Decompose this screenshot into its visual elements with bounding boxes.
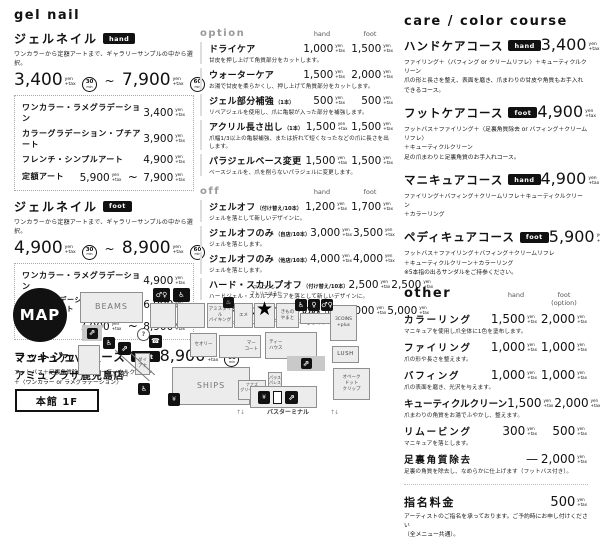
escalator-zone: ⇗ [287, 356, 325, 371]
table-row: ワンカラー・ラメグラデーション 3,400yen+tax [22, 100, 186, 126]
course-item: マニキュアコース hand 4,900yen+tax 50min ファイリング＋… [404, 169, 588, 221]
course-price: 5,900yen+tax 50min [549, 227, 600, 249]
menu-desc: リペアジェルを使用し、爪に亀裂が入った部分を補強します。 [209, 108, 394, 116]
other-item: リムービング 300yen+tax 500yen+tax マニキュアを落とします… [404, 424, 588, 447]
course-desc: フットバス＋ファイリング＋バフィング＋クリームリフレ ＋キューティクルクリーン＋… [404, 250, 588, 278]
foot-column-label: foot [346, 189, 394, 197]
menu-desc: 爪幅1/3以上の亀裂補強、または折れて短くなったなどの爪に長さを出します。 [209, 134, 394, 150]
escalator-icon: ⇗ [118, 342, 131, 355]
price-to: 8,900 [122, 238, 171, 258]
nomination-fee-section: 指名料金 500yen+tax アーティストのご指名を承っております。ご予約時に… [404, 484, 588, 541]
foot-price: 3,500yen+tax [353, 227, 396, 239]
menu-desc: マニキュアを使用し爪全体に1色を塗布します。 [404, 327, 588, 335]
shop-mercato: マー コート [219, 335, 261, 358]
foot-price: 2,000yen+tax [538, 312, 588, 326]
gel-hand-title: ジェルネイル [14, 30, 98, 47]
hand-price: 1,500yen+tax [303, 121, 348, 133]
menu-note: （1本） [284, 125, 303, 132]
menu-desc: 足裏の角質を除去し、なめらかに仕上げます（フットバス付き）。 [404, 467, 588, 475]
menu-name: ジェルオフ [209, 200, 256, 213]
option-header: option [200, 28, 298, 39]
menu-desc: ベースジェルを、爪を削らないパラジェルに変更します。 [209, 168, 394, 176]
nomination-fee-desc: アーティストのご指名を承っております。ご予約時にお申し付けください （全メニュー… [404, 513, 588, 541]
course-name: マニキュアコース [404, 172, 503, 188]
hand-column-label: hand [298, 189, 346, 197]
shop-theory: セオリー [190, 333, 217, 357]
hand-price: 1,000yen+tax [298, 43, 346, 55]
shop-lush: LUSH [332, 346, 359, 363]
course-item: ペディキュアコース foot 5,900yen+tax 50min フットバス＋… [404, 227, 588, 279]
gel-foot-title-row: ジェルネイル foot [14, 198, 194, 215]
shop-eme: エメ [234, 303, 253, 328]
gel-hand-section: ジェルネイル hand ワンカラーから定額アートまで、ギャラリーサンプルの中から… [14, 30, 194, 191]
option-item: ウォーターケア 1,500yen+tax 2,000yen+tax お湯で甘皮を… [200, 68, 394, 90]
hand-price: 500yen+tax [298, 95, 346, 107]
course-name: ハンドケアコース [404, 38, 503, 54]
floor-map: BEAMS アミスタイル バイキング エメ きもの やまと 3COINS +pl… [78, 286, 398, 422]
yen-tax-unit: yen+tax [65, 245, 76, 255]
minutes-badge: 30min [82, 245, 97, 260]
phone-icon: ☎ [149, 335, 162, 348]
price-to: 7,900 [122, 70, 171, 90]
foot-price: 2,000yen+tax [554, 396, 600, 410]
menu-name: リムービング [404, 424, 472, 438]
course-item: ハンドケアコース hand 3,400yen+tax 30min ファイリング＋… [404, 35, 588, 96]
hand-price: 4,000yen+tax [310, 253, 353, 265]
price-from: 3,400 [14, 70, 63, 90]
off-item: ジェルオフのみ（自店/10本） 3,000yen+tax 3,500yen+ta… [200, 226, 394, 248]
menu-desc: ジェルを落として新しいデザインに。 [209, 214, 394, 222]
hand-price: 3,000yen+tax [310, 227, 353, 239]
other-item: バフィング 1,000yen+tax 1,000yen+tax 爪の表面を磨き、… [404, 368, 588, 391]
foot-price: 1,000yen+tax [538, 368, 588, 382]
foot-price: 2,000yen+tax [346, 69, 394, 81]
menu-price: 3,900yen+tax [143, 133, 186, 145]
menu-name: カラーリング [404, 312, 472, 326]
accessible-icon: ♿ [103, 337, 115, 349]
off-header-row: off hand foot [200, 186, 394, 197]
gel-hand-title-row: ジェルネイル hand [14, 30, 194, 47]
accessible-icon: ♿ [173, 288, 190, 302]
menu-note: （付け替え/10本） [257, 205, 302, 212]
yen-tax-unit: yen+tax [173, 245, 184, 255]
shop-3coins: 3COINS +plus [330, 305, 357, 341]
option-item: ドライケア 1,000yen+tax 1,500yen+tax 甘皮を押し上げて… [200, 42, 394, 64]
menu-price-range: 5,900yen+tax ~ 7,900yen+tax [80, 170, 186, 184]
menu-desc: ジェルを落とします。 [209, 240, 394, 248]
menu-name: ジェル部分補強 [209, 94, 274, 107]
atm-icon: ¥ [258, 391, 270, 404]
menu-name: バフィング [404, 368, 460, 382]
hand-price: 1,500yen+tax [507, 396, 554, 410]
course-item: フットケアコース foot 4,900yen+tax 40min フットバス＋フ… [404, 102, 588, 163]
hand-price: — [488, 452, 538, 466]
foot-price: 1,000yen+tax [538, 340, 588, 354]
foot-price: 2,000yen+tax [538, 452, 588, 466]
nomination-fee-name: 指名料金 [404, 494, 455, 510]
course-price: 4,900yen+tax 50min [541, 169, 600, 191]
hand-price: 1,500yen+tax [302, 155, 348, 167]
off-header: off [200, 186, 298, 197]
menu-name: ジェルオフのみ [209, 252, 274, 265]
gel-hand-price-table: ワンカラー・ラメグラデーション 3,400yen+tax カラーグラデーション・… [14, 95, 194, 191]
escalator-zone: ⇗ [82, 325, 102, 341]
gel-foot-price-range: 4,900yen+tax 30min ~ 8,900yen+tax 60min [14, 238, 194, 260]
tilde: ~ [104, 242, 114, 256]
menu-name: ドライケア [209, 42, 256, 55]
menu-note: （1本） [275, 99, 294, 106]
bus-terminal-label: バスターミナル [248, 409, 328, 417]
hand-price: 1,500yen+tax [298, 69, 346, 81]
foot-price: 1,500yen+tax [346, 43, 394, 55]
nomination-fee-price: 500yen+tax [538, 495, 588, 510]
menu-desc: ジェルを落とします。 [209, 266, 394, 274]
accessible-icon: ♿ [295, 299, 307, 311]
table-row: フレンチ・シンプルアート 4,900yen+tax [22, 152, 186, 168]
course-desc: ファイリング＋バフィング＋クリームリフレ＋キューティクルクリーン ＋カラーリング [404, 193, 588, 221]
foot-option-column-label: foot (option) [540, 292, 588, 308]
hand-badge: hand [508, 174, 540, 185]
option-off-column: option hand foot ドライケア 1,000yen+tax 1,50… [200, 28, 394, 330]
table-row: カラーグラデーション・プチアート 3,900yen+tax [22, 126, 186, 152]
tilde: ~ [104, 74, 114, 88]
menu-desc: 爪まわりの角質をお湯でふやかし、整えます。 [404, 411, 588, 419]
menu-desc: 甘皮を押し上げて角質部分をカットします。 [209, 56, 394, 64]
menu-name: カラーグラデーション・プチアート [22, 128, 143, 150]
gel-foot-desc: ワンカラーから定額アートまで、ギャラリーサンプルの中から選択。 [14, 217, 194, 235]
hand-badge: hand [103, 33, 135, 44]
restroom-icon: ♂♀ [153, 288, 170, 302]
menu-note: （他店/10本） [275, 257, 310, 264]
menu-desc: マニキュアを落とします。 [404, 439, 588, 447]
nail-salon-price-leaflet: { "units": {"yen": "yen", "tax": "+tax",… [0, 0, 600, 423]
other-item: カラーリング 1,500yen+tax 2,000yen+tax マニキュアを使… [404, 312, 588, 335]
course-desc: フットバス＋ファイリング＋〈足裏角質除去 or バフィング＋クリームリフレ〉 ＋… [404, 126, 588, 163]
shop-block [177, 303, 205, 328]
hand-badge: hand [508, 40, 540, 51]
menu-name: ウォーターケア [209, 68, 274, 81]
foot-column-label: foot [346, 31, 394, 39]
foot-price: 1,500yen+tax [348, 155, 394, 167]
foot-price: 4,000yen+tax [353, 253, 396, 265]
hand-price: 1,000yen+tax [488, 340, 538, 354]
escalator-icon: ⇗ [285, 391, 298, 404]
menu-name: アクリル長さ出し [209, 120, 283, 133]
shop-block [300, 313, 332, 324]
yen-tax-unit: yen+tax [173, 77, 184, 87]
menu-name: ジェルオフのみ [209, 226, 274, 239]
hand-price: 1,000yen+tax [488, 368, 538, 382]
menu-name: フレンチ・シンプルアート [22, 154, 123, 165]
menu-name: 足裏角質除去 [404, 452, 472, 466]
foot-price: 1,500yen+tax [349, 121, 394, 133]
minutes-badge: 30min [82, 77, 97, 92]
hand-price: 300yen+tax [488, 424, 538, 438]
foot-price: 1,700yen+tax [348, 201, 394, 213]
map-circle-label: MAP [13, 288, 67, 342]
location-star-icon: ★ [256, 300, 273, 319]
foot-badge: foot [520, 232, 549, 243]
care-color-column: care / color course ハンドケアコース hand 3,400y… [404, 14, 588, 541]
foot-price: 500yen+tax [538, 424, 588, 438]
menu-name: キューティクルクリーン [404, 396, 507, 410]
menu-desc: お湯で甘皮を柔らかくし、押し上げて角質部分をカットします。 [209, 82, 394, 90]
course-name: ペディキュアコース [404, 229, 515, 245]
other-header-row: other hand foot (option) [404, 286, 588, 308]
gel-foot-title: ジェルネイル [14, 198, 98, 215]
other-item: キューティクルクリーン 1,500yen+tax 2,000yen+tax 爪ま… [404, 396, 588, 419]
menu-desc: 爪の表面を磨き、光沢を与えます。 [404, 383, 588, 391]
shop-aubake-dot-clip: オベーク ドット クリップ [333, 368, 370, 400]
off-item: ジェルオフ（付け替え/10本） 1,200yen+tax 1,700yen+ta… [200, 200, 394, 222]
menu-desc: 爪の形や長さを整えます。 [404, 355, 588, 363]
foot-badge: foot [103, 201, 132, 212]
menu-name: 定額アート [22, 171, 64, 182]
option-item: パラジェルベース変更 1,500yen+tax 1,500yen+tax ベース… [200, 154, 394, 176]
menu-price: 4,900yen+tax [143, 154, 186, 166]
option-header-row: option hand foot [200, 28, 394, 39]
price-from: 4,900 [14, 238, 63, 258]
gel-nail-header: gel nail [14, 8, 194, 23]
course-name: フットケアコース [404, 105, 503, 121]
women-restroom-icon: ♀ [308, 299, 320, 311]
care-color-header: care / color course [404, 14, 588, 29]
other-item: 足裏角質除去 — 2,000yen+tax 足裏の角質を除去し、なめらかに仕上げ… [404, 452, 588, 475]
menu-name: パラジェルベース変更 [209, 154, 301, 167]
gel-hand-price-range: 3,400yen+tax 30min ~ 7,900yen+tax 60min [14, 70, 194, 92]
atm-icon: ¥ [168, 393, 180, 406]
other-header: other [404, 286, 492, 301]
shop-block [78, 345, 100, 375]
menu-name: ファイリング [404, 340, 472, 354]
course-desc: ファイリング＋〈バフィング or クリームリフレ〉＋キューティクルクリーン 爪の… [404, 59, 588, 96]
hand-column-label: hand [298, 31, 346, 39]
hand-column-label: hand [492, 292, 540, 300]
hand-price: 1,500yen+tax [488, 312, 538, 326]
yen-tax-unit: yen+tax [65, 77, 76, 87]
course-price: 3,400yen+tax 30min [541, 35, 600, 57]
shop-beams: BEAMS [80, 292, 143, 323]
option-item: ジェル部分補強（1本） 500yen+tax 500yen+tax リペアジェル… [200, 94, 394, 116]
atelier-haruka-label: アイコフレ× アトリエはるか [230, 286, 302, 298]
off-item: ジェルオフのみ（他店/10本） 4,000yen+tax 4,000yen+ta… [200, 252, 394, 274]
foot-badge: foot [508, 107, 537, 118]
accessible-icon: ♿ [138, 383, 150, 395]
basement-entrance-label: 地下入口 [100, 372, 134, 379]
menu-name: ワンカラー・ラメグラデーション [22, 102, 143, 124]
restroom-icon: ♂♀ [321, 299, 333, 311]
kiosk-icon [273, 391, 282, 404]
shop-block [150, 303, 176, 328]
menu-price: 4,900yen+tax [143, 275, 186, 287]
menu-price: 3,400yen+tax [143, 107, 186, 119]
table-row: 定額アート 5,900yen+tax ~ 7,900yen+tax [22, 168, 186, 186]
shop-teahouse: ティー ハウス [265, 332, 317, 359]
course-price: 4,900yen+tax 40min [537, 102, 600, 124]
gel-hand-desc: ワンカラーから定額アートまで、ギャラリーサンプルの中から選択。 [14, 49, 194, 67]
spa-icon: ♨ [223, 297, 234, 308]
foot-price: 500yen+tax [346, 95, 394, 107]
other-item: ファイリング 1,000yen+tax 1,000yen+tax 爪の形や長さを… [404, 340, 588, 363]
escalator-icon: ⇗ [301, 358, 312, 369]
updown-arrows-icon: ↑↓ [236, 409, 244, 416]
escalator-icon: ⇗ [87, 328, 98, 339]
option-item: アクリル長さ出し（1本） 1,500yen+tax 1,500yen+tax 爪… [200, 120, 394, 150]
hand-price: 1,200yen+tax [302, 201, 348, 213]
updown-arrows-icon: ↑↓ [330, 409, 338, 416]
menu-note: （自店/10本） [275, 231, 310, 238]
